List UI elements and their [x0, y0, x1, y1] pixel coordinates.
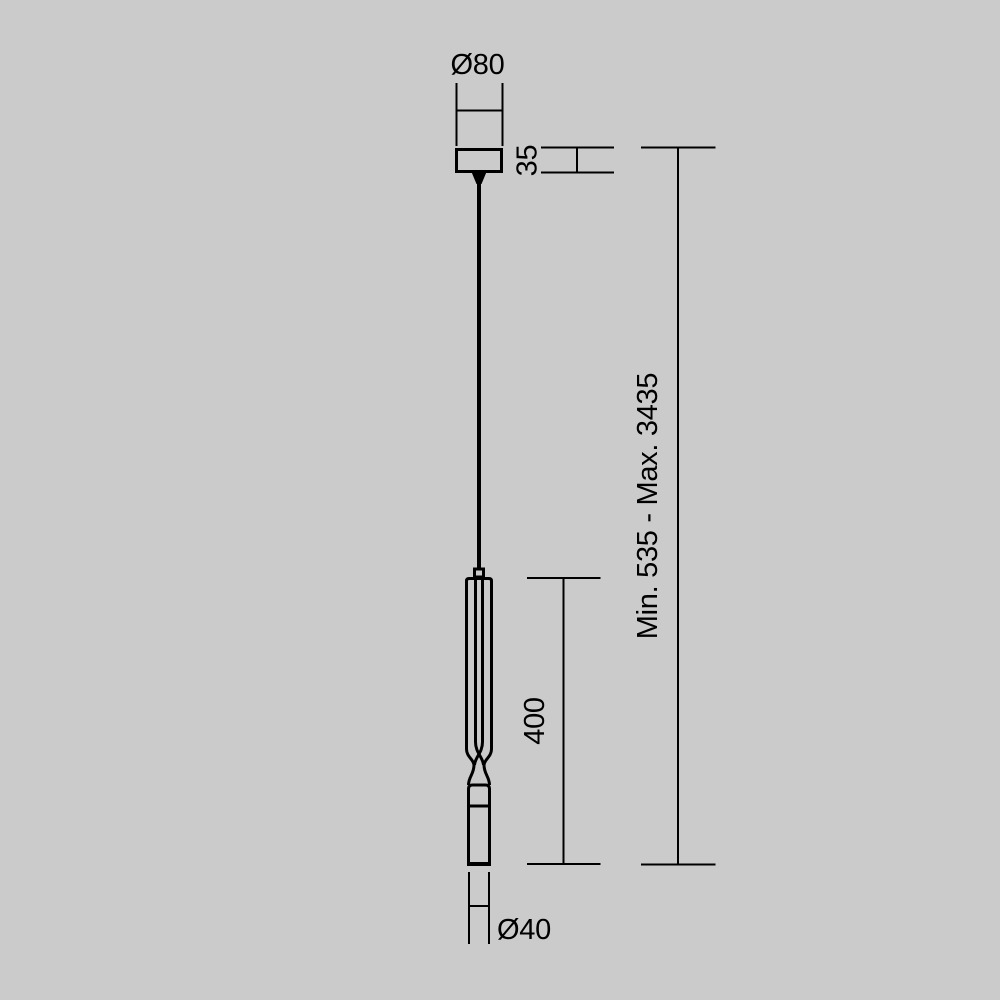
ceiling-canopy: [457, 150, 502, 172]
canopy-height-label: 35: [512, 145, 544, 177]
suspension-range-label: Min. 535 - Max. 3435: [632, 373, 664, 639]
canopy-diameter-label: Ø80: [451, 49, 505, 81]
neck-flare-right: [484, 765, 490, 785]
pendant-lamp-dimension-drawing: Ø80 35 400 Min. 535 - Max. 3435 Ø40: [0, 0, 1000, 1000]
tube-pinch-left: [467, 749, 475, 765]
lamp-fixture: [457, 150, 502, 865]
body-length-label: 400: [519, 697, 551, 745]
lamp-body-tube-outer: [467, 579, 492, 750]
dimension-canopy-height: 35: [512, 145, 615, 177]
bottom-tip-cylinder: [469, 785, 490, 864]
cable-connector: [475, 569, 484, 577]
tube-pinch-right: [484, 749, 492, 765]
tip-diameter-label: Ø40: [497, 914, 551, 946]
dimension-canopy-diameter: Ø80: [451, 49, 505, 146]
neck-flare-left: [469, 765, 475, 785]
dimension-suspension-range: Min. 535 - Max. 3435: [632, 148, 716, 865]
dimension-tip-diameter: Ø40: [469, 872, 551, 946]
dimension-body-length: 400: [519, 578, 601, 864]
